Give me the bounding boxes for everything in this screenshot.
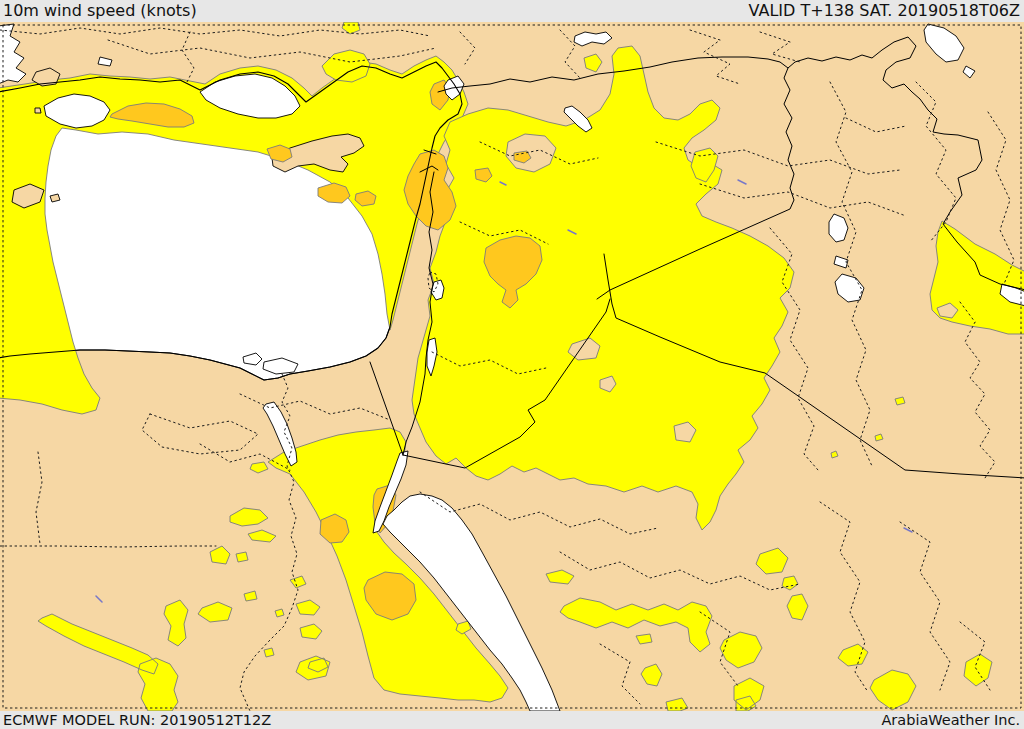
weather-map-app: 10m wind speed (knots) VALID T+138 SAT. … — [0, 0, 1024, 729]
model-run-label: ECMWF MODEL RUN: 20190512T12Z — [3, 711, 271, 729]
valid-time-label: VALID T+138 SAT. 20190518T06Z — [749, 0, 1020, 22]
header-bar: 10m wind speed (knots) VALID T+138 SAT. … — [0, 0, 1024, 22]
wind-map-canvas — [0, 22, 1024, 711]
wind-map — [0, 22, 1024, 711]
map-title: 10m wind speed (knots) — [3, 0, 197, 22]
brand-label: ArabiaWeather Inc. — [881, 711, 1020, 729]
footer-bar: ECMWF MODEL RUN: 20190512T12Z ArabiaWeat… — [0, 711, 1024, 729]
